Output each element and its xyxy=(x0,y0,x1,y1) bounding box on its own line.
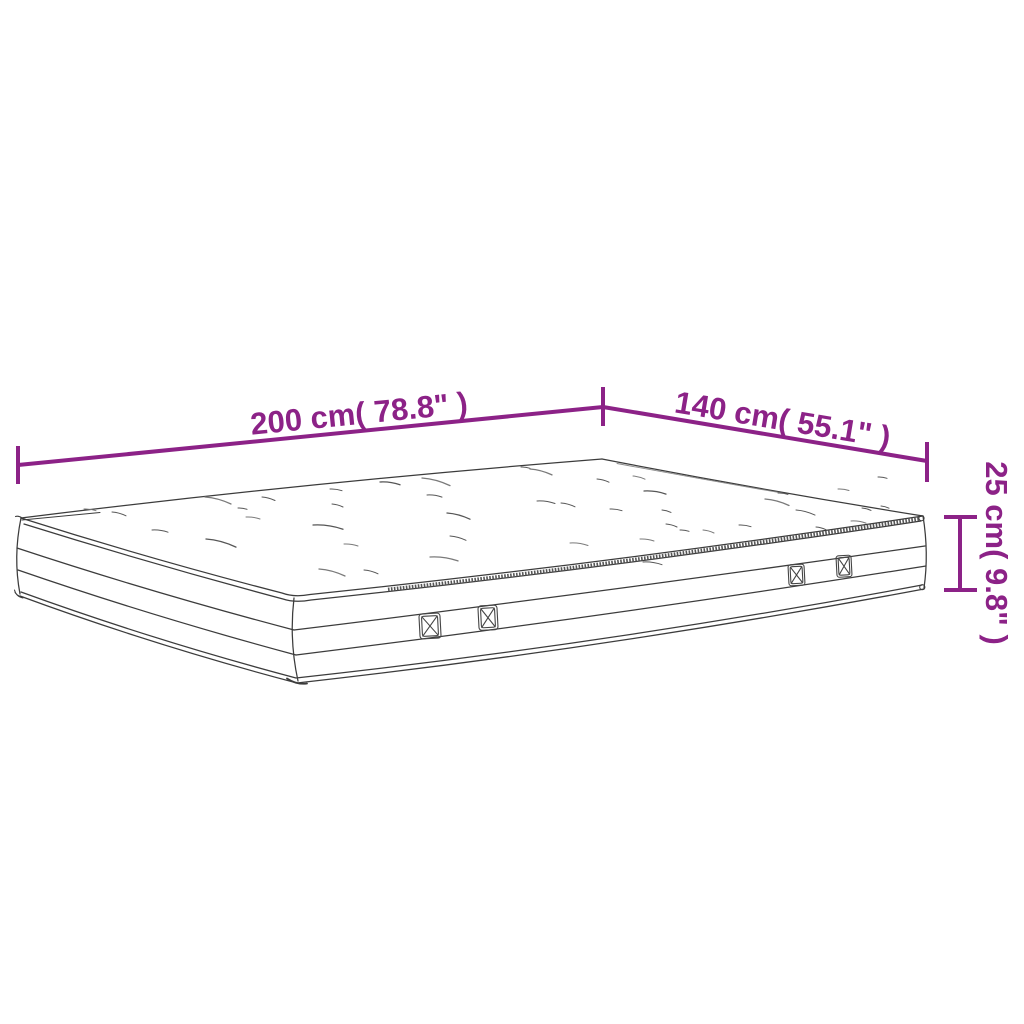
svg-text:25 cm( 9.8" ): 25 cm( 9.8" ) xyxy=(979,461,1014,645)
